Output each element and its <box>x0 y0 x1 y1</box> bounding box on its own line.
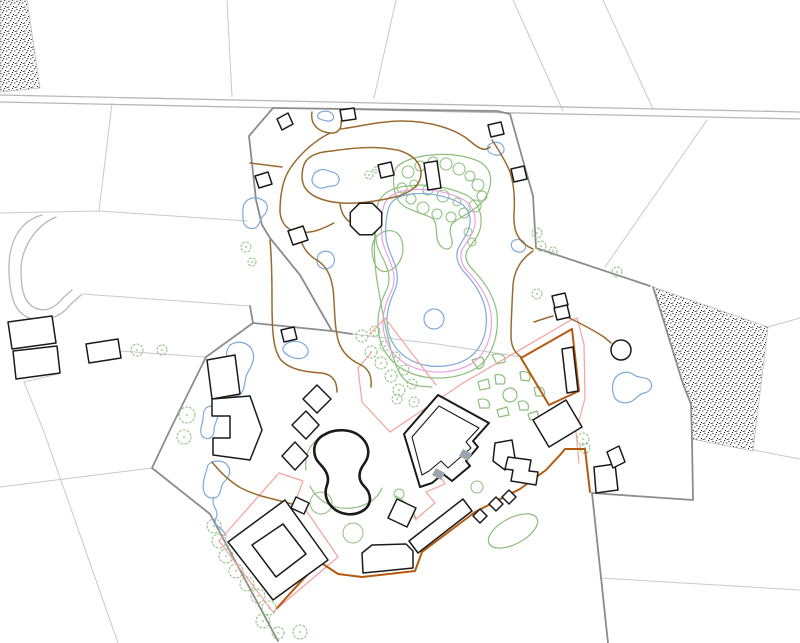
tree-center-dot <box>390 375 392 377</box>
tree-center-dot <box>251 261 253 263</box>
tree-center-dot <box>245 246 247 248</box>
parterre-bed <box>520 372 530 381</box>
tree-center-dot <box>552 250 554 252</box>
path <box>312 112 341 133</box>
outbuilding <box>277 113 293 130</box>
main-house <box>404 395 489 487</box>
tree <box>402 166 414 178</box>
kidney-pool <box>314 430 370 514</box>
boundary-south-spur <box>592 493 608 643</box>
lake-magenta-ring <box>381 189 491 372</box>
parterre-bed <box>518 401 528 410</box>
boundary-west <box>249 108 332 331</box>
tree <box>446 212 456 222</box>
road <box>0 95 800 320</box>
tree-center-dot <box>262 620 264 622</box>
boundary-southwest <box>152 306 278 641</box>
parterre-bed <box>497 407 509 417</box>
pond <box>312 170 339 188</box>
trapezoid-building <box>362 544 413 573</box>
pink-line <box>358 353 390 432</box>
tree-center-dot <box>361 335 363 337</box>
tree-center-dot <box>616 271 618 273</box>
tree-center-dot <box>411 383 413 385</box>
icehouse-circle <box>611 340 631 360</box>
field-line <box>513 0 563 111</box>
tree-center-dot <box>536 293 538 295</box>
tree <box>453 163 465 175</box>
tree-center-dot <box>398 389 400 391</box>
field-barn <box>8 316 56 349</box>
driveway-outer <box>9 215 81 320</box>
pond <box>317 251 334 269</box>
pavilion-octagon <box>350 203 381 234</box>
tree-center-dot <box>161 349 163 351</box>
pond <box>487 142 504 155</box>
farm-barn <box>207 355 240 399</box>
tree-center-dot <box>413 401 415 403</box>
woodland-stipple <box>0 0 768 451</box>
tree-center-dot <box>384 345 386 347</box>
path <box>361 365 371 387</box>
lake-island <box>424 309 444 329</box>
field-barn <box>86 339 121 363</box>
path <box>280 212 334 232</box>
tree <box>477 191 487 201</box>
woodland-nw <box>0 0 40 92</box>
driveway-inner <box>21 217 72 310</box>
pond <box>283 341 308 358</box>
tree <box>417 202 429 214</box>
field-line <box>605 120 707 267</box>
path <box>340 204 350 222</box>
outbuilding <box>255 172 272 188</box>
pond <box>613 372 652 402</box>
tree-center-dot <box>380 362 382 364</box>
pavilion-diamond <box>303 385 331 413</box>
tree-center-dot <box>582 438 584 440</box>
farm-court <box>212 396 262 460</box>
site-plan-svg <box>0 0 800 643</box>
tree-center-dot <box>299 631 301 633</box>
tree-center-dot <box>375 169 377 171</box>
pond <box>511 240 525 253</box>
parterre-circle <box>503 388 517 402</box>
field-line <box>227 0 232 97</box>
tree-center-dot <box>374 330 376 332</box>
woodland-east <box>653 287 768 451</box>
tree-center-dot <box>225 555 227 557</box>
long-barn <box>409 499 472 553</box>
tree-center-dot <box>136 349 138 351</box>
stable-wing <box>505 457 538 485</box>
outbuilding <box>511 166 527 182</box>
parterre-bed <box>478 399 489 408</box>
field-line <box>603 0 653 109</box>
path <box>270 240 337 392</box>
path <box>492 140 533 249</box>
pool <box>314 430 370 514</box>
tree-center-dot <box>396 398 398 400</box>
tree-center-dot <box>235 570 237 572</box>
bush <box>471 481 483 493</box>
cottage <box>594 464 618 493</box>
tree-center-dot <box>277 632 279 634</box>
field-line <box>600 578 800 590</box>
tree-center-dot <box>257 595 259 597</box>
field-line <box>24 374 118 643</box>
field-line <box>99 103 112 211</box>
pavilion-diamond <box>292 411 319 439</box>
tree-center-dot <box>368 174 370 176</box>
field-line <box>753 450 800 459</box>
field-line <box>768 318 800 327</box>
path <box>212 462 292 504</box>
pavilion-diamond <box>282 442 308 470</box>
estate-site-plan <box>0 0 800 643</box>
tree-center-dot <box>246 583 248 585</box>
tree-center-dot <box>403 369 405 371</box>
tree-center-dot <box>183 436 185 438</box>
tree <box>432 209 442 219</box>
outbuilding <box>378 162 394 178</box>
shed-square <box>388 499 416 527</box>
kitchen-building <box>533 400 582 447</box>
bush <box>343 523 363 543</box>
tree-center-dot <box>186 414 188 416</box>
pond <box>243 198 268 229</box>
main-house-outer <box>404 395 489 487</box>
parterre-bed <box>478 379 490 390</box>
oval-lawn <box>483 507 543 555</box>
tree-center-dot <box>540 245 542 247</box>
woodland-trees <box>310 157 487 543</box>
path <box>511 251 533 357</box>
tree <box>440 158 452 170</box>
lake-ring <box>381 189 491 372</box>
field-barn <box>13 346 60 379</box>
outbuilding <box>288 226 308 245</box>
lawn-bed <box>372 231 403 272</box>
outbuilding <box>281 327 297 342</box>
parterre-bed <box>495 375 505 384</box>
lake <box>386 193 487 366</box>
tree <box>406 194 416 204</box>
tree <box>472 179 484 191</box>
tree <box>465 171 475 181</box>
track-line <box>82 294 250 306</box>
pond <box>318 111 334 121</box>
tree-center-dot <box>536 232 538 234</box>
path <box>250 163 282 167</box>
buildings <box>8 108 631 600</box>
field-line <box>374 0 396 98</box>
lodge <box>554 305 570 320</box>
field-line <box>0 468 152 487</box>
path <box>341 121 490 149</box>
outbuilding <box>488 122 504 137</box>
tree-center-dot <box>213 525 215 527</box>
path <box>534 316 553 322</box>
outbuilding <box>340 108 356 121</box>
